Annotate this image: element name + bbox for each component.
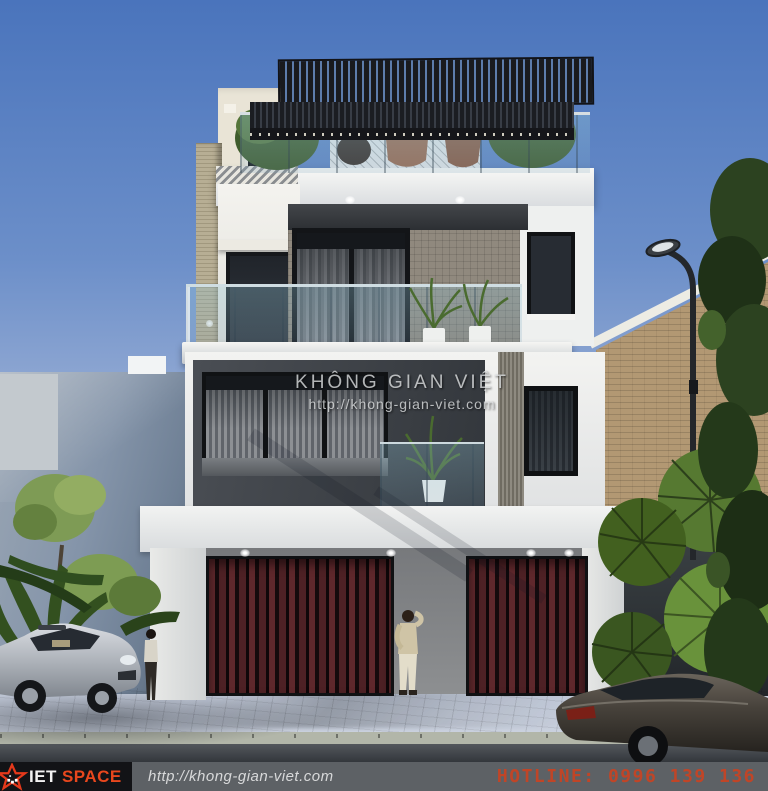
neighbor-rooftop-box	[128, 356, 166, 374]
dark-fascia-band	[288, 204, 528, 230]
hotline-text: HOTLINE: 0996 139 136	[497, 766, 756, 787]
downlight	[564, 549, 574, 557]
watermark-title: KHÔNG GIAN VIỆT	[235, 372, 569, 394]
downlight	[526, 549, 536, 557]
footer-bar: IET SPACE http://khong-gian-viet.com HOT…	[0, 762, 768, 791]
sedan-car	[552, 652, 768, 764]
balcony-plants	[404, 272, 514, 346]
brand-suffix: SPACE	[62, 767, 122, 787]
watermark: KHÔNG GIAN VIỆT http://khong-gian-viet.c…	[235, 372, 569, 412]
footer-url: http://khong-gian-viet.com	[148, 768, 334, 785]
pergola-front-edge	[250, 128, 574, 140]
downlight	[386, 549, 396, 557]
pergola-underside-slats	[250, 102, 574, 128]
palm-frond-foreground	[0, 555, 130, 615]
architectural-render: KHÔNG GIAN VIỆT http://khong-gian-viet.c…	[0, 0, 768, 791]
downlight	[455, 196, 465, 204]
person-on-phone	[388, 608, 428, 710]
garage-door-left	[206, 556, 394, 696]
downlight	[345, 196, 355, 204]
brand-prefix: IET	[29, 767, 57, 787]
tree-right-edge	[688, 150, 768, 710]
brand-logo: IET SPACE	[0, 762, 132, 791]
third-floor-right-window	[527, 232, 575, 318]
star-logo-icon	[0, 763, 29, 791]
pergola-canopy	[278, 57, 594, 108]
downlight	[240, 549, 250, 557]
watermark-url: http://khong-gian-viet.com	[235, 396, 569, 412]
window-sill	[527, 314, 575, 320]
